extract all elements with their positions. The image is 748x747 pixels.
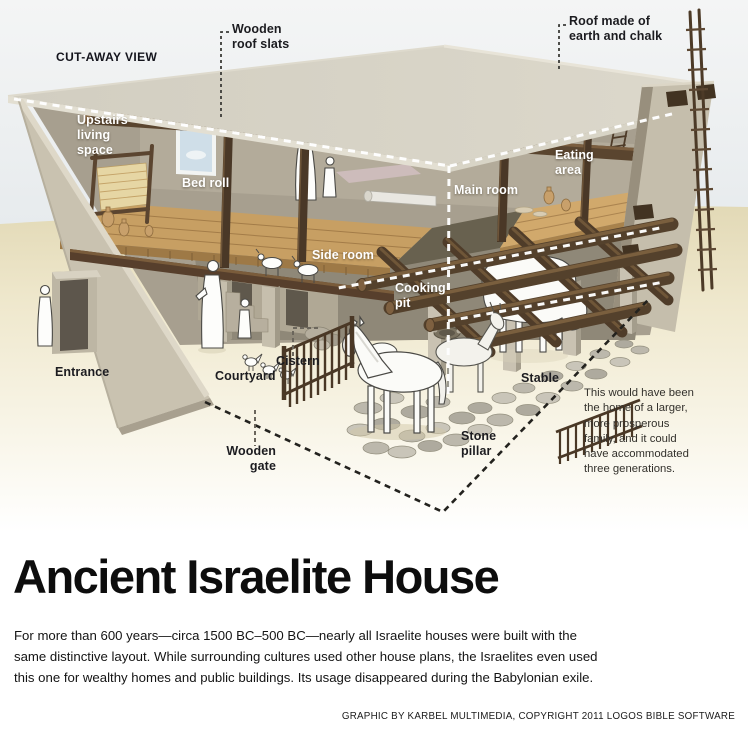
note-text: This would have been the home of a large…	[584, 386, 726, 478]
view-label: CUT-AWAY VIEW	[56, 50, 157, 64]
label-bed-roll: Bed roll	[182, 176, 229, 191]
label-upstairs-living-space: Upstairs living space	[77, 113, 128, 157]
label-side-room: Side room	[312, 248, 374, 263]
label-wooden-roof-slats: Wooden roof slats	[232, 22, 289, 52]
label-courtyard: Courtyard	[215, 369, 276, 384]
label-eating-area: Eating area	[555, 148, 594, 178]
label-roof-material: Roof made of earth and chalk	[569, 14, 662, 44]
label-stone-pillar: Stone pillar	[461, 429, 496, 459]
intro-paragraph: For more than 600 years—circa 1500 BC–50…	[14, 626, 598, 689]
label-cooking-pit: Cooking pit	[395, 281, 446, 311]
infographic-page: CUT-AWAY VIEW Wooden roof slats Roof mad…	[0, 0, 748, 747]
label-cistern: Cistern	[276, 354, 320, 369]
label-main-room: Main room	[454, 183, 518, 198]
credit-line: GRAPHIC BY KARBEL MULTIMEDIA, COPYRIGHT …	[342, 711, 735, 722]
label-stable: Stable	[521, 371, 559, 386]
article-section: Ancient Israelite House For more than 60…	[0, 532, 748, 747]
entrance-doorway	[60, 279, 88, 351]
page-title: Ancient Israelite House	[13, 552, 498, 601]
label-wooden-gate: Wooden gate	[216, 444, 276, 474]
label-entrance: Entrance	[55, 365, 109, 380]
cutaway-illustration: CUT-AWAY VIEW Wooden roof slats Roof mad…	[0, 0, 748, 532]
